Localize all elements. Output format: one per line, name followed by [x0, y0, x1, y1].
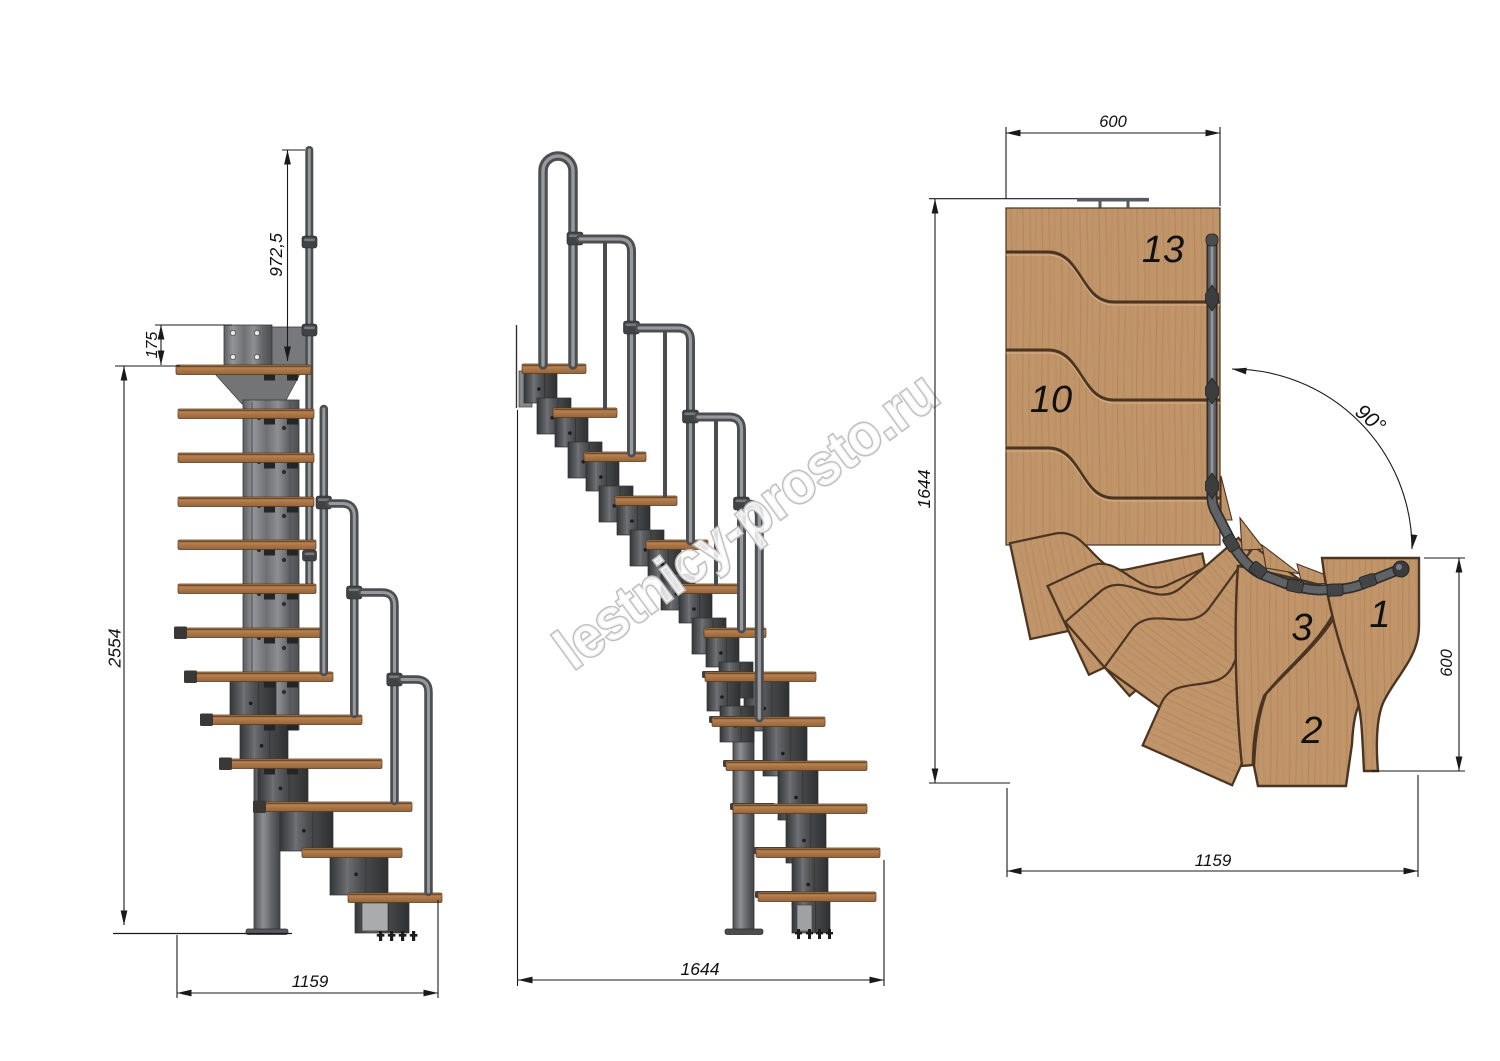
- svg-text:1644: 1644: [681, 959, 720, 979]
- svg-text:13: 13: [1142, 229, 1184, 271]
- svg-text:90°: 90°: [1351, 400, 1390, 438]
- svg-text:1159: 1159: [1195, 851, 1232, 870]
- svg-text:3: 3: [1291, 607, 1312, 649]
- svg-text:2554: 2554: [105, 628, 125, 668]
- svg-text:175: 175: [144, 332, 161, 359]
- svg-text:972,5: 972,5: [266, 233, 286, 277]
- svg-text:1159: 1159: [292, 972, 329, 991]
- svg-text:1: 1: [1369, 594, 1390, 636]
- svg-text:600: 600: [1099, 113, 1127, 131]
- svg-text:1644: 1644: [914, 469, 934, 508]
- svg-text:2: 2: [1300, 710, 1322, 752]
- svg-text:600: 600: [1438, 648, 1456, 676]
- svg-text:10: 10: [1030, 379, 1072, 421]
